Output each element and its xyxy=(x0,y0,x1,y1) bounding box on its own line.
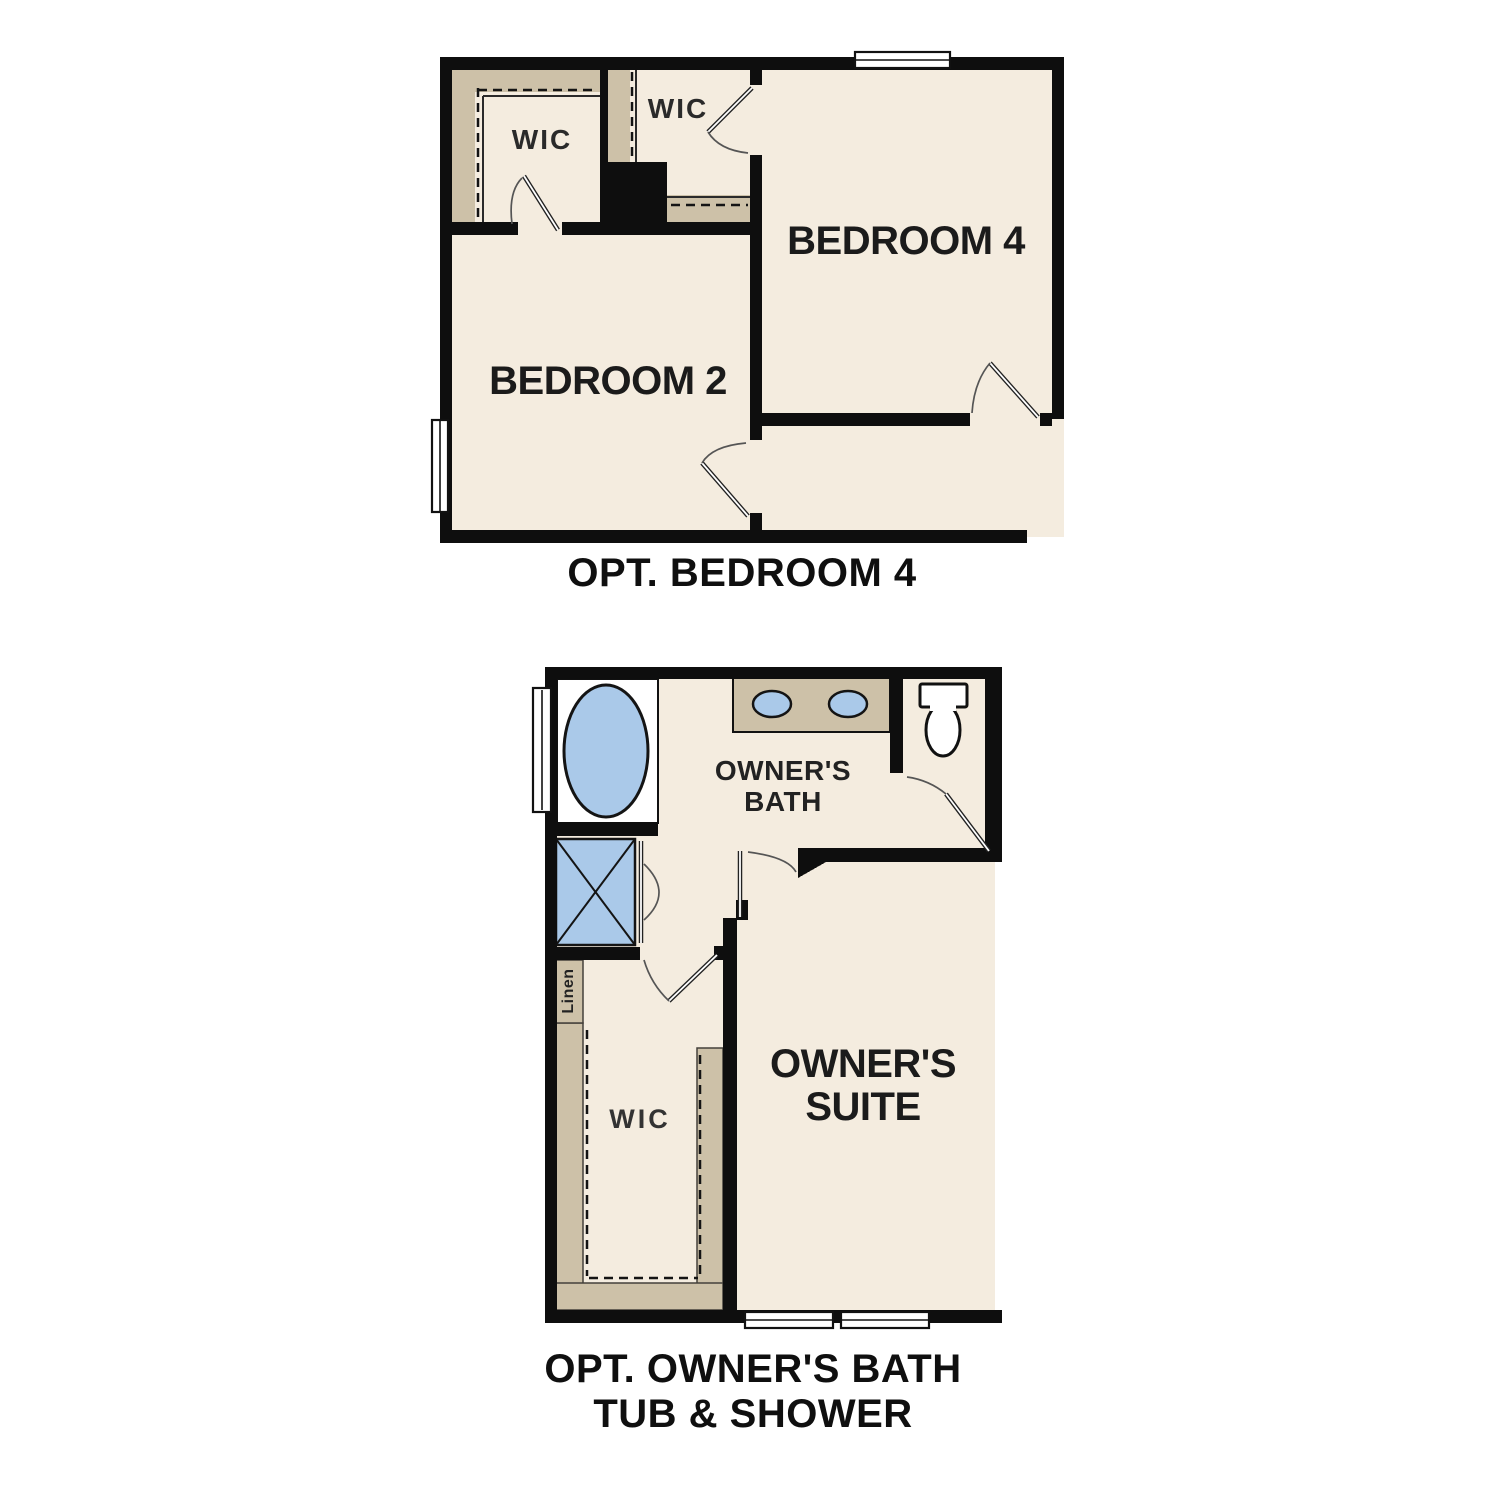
owners-suite-label-line1: OWNER'S xyxy=(770,1042,956,1086)
floor-plan-sheet: WIC WIC BEDROOM 4 BEDROOM 2 OPT. BEDROOM… xyxy=(0,0,1500,1500)
owners-suite-label-line2: SUITE xyxy=(805,1085,920,1129)
owners-bath-label-line1: OWNER'S xyxy=(715,755,851,786)
plan-opt-bedroom4: WIC WIC BEDROOM 4 BEDROOM 2 OPT. BEDROOM… xyxy=(432,52,1064,595)
sink-right xyxy=(829,691,867,717)
sink-left xyxy=(753,691,791,717)
wic-label: WIC xyxy=(609,1104,670,1134)
suite-window-right xyxy=(841,1312,929,1328)
bathtub xyxy=(557,679,658,823)
bedroom2-label: BEDROOM 2 xyxy=(489,359,727,403)
vanity-counter xyxy=(733,678,890,732)
plan-bottom-caption-line2: TUB & SHOWER xyxy=(593,1392,912,1436)
floor-plans-image: WIC WIC BEDROOM 4 BEDROOM 2 OPT. BEDROOM… xyxy=(0,0,1500,1500)
bedroom2-window xyxy=(432,420,448,512)
plan-opt-owners-bath: OWNER'S BATH OWNER'S SUITE WIC Linen OPT… xyxy=(533,667,1002,1436)
wic-middle-label: WIC xyxy=(648,93,708,124)
owners-bath-label-line2: BATH xyxy=(744,786,822,817)
plan-bottom-caption-line1: OPT. OWNER'S BATH xyxy=(544,1347,961,1391)
chase xyxy=(600,162,667,235)
linen-label: Linen xyxy=(560,968,577,1013)
plan-top-caption: OPT. BEDROOM 4 xyxy=(567,551,917,595)
suite-window-left xyxy=(745,1312,833,1328)
bedroom4-window xyxy=(855,52,950,68)
wic-left-label: WIC xyxy=(512,124,572,155)
bedroom4-label: BEDROOM 4 xyxy=(787,219,1026,263)
tub-window xyxy=(533,688,551,812)
